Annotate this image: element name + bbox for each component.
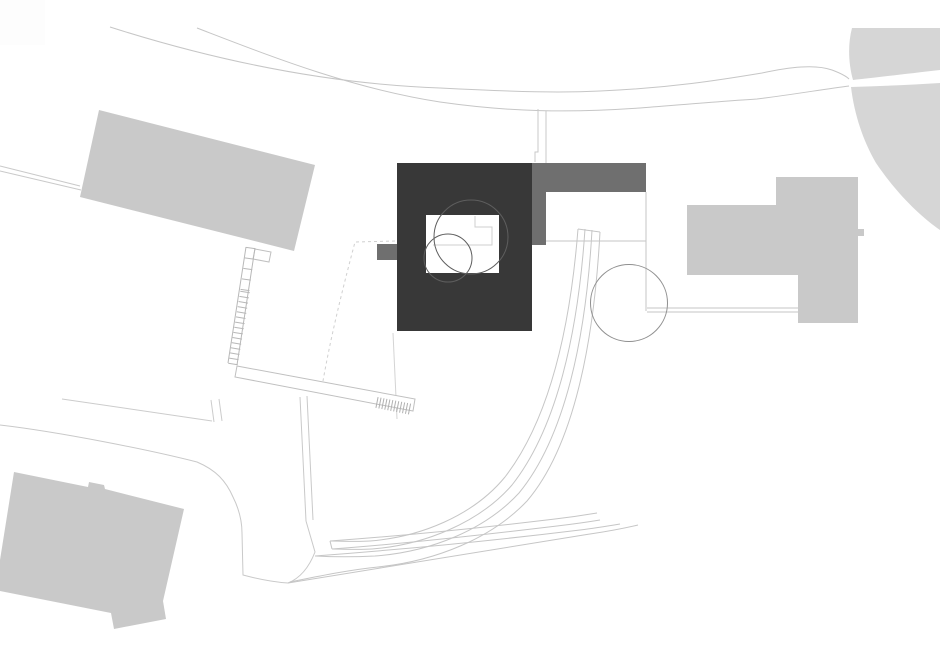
main-house-wing-leg xyxy=(532,192,546,245)
building-east xyxy=(687,177,858,323)
tree-circle-east xyxy=(591,265,668,342)
left-boundary-path xyxy=(0,166,81,190)
main-house-wing xyxy=(532,163,646,192)
stair-treads-lower-tick xyxy=(231,348,240,350)
ramp-cap xyxy=(578,229,600,232)
corner-patch xyxy=(0,0,45,45)
site-plan-canvas xyxy=(0,0,940,646)
building-northwest xyxy=(80,110,315,251)
road-bulge-outline xyxy=(288,521,315,583)
stair-rails xyxy=(228,247,255,365)
wall-band-cap xyxy=(330,541,332,549)
main-house-west-stub xyxy=(377,244,397,260)
wall-band-lower xyxy=(332,520,600,549)
terrain-lower-right xyxy=(851,83,940,230)
stair-treads-lower-tick xyxy=(232,343,241,345)
stair-treads-lower-tick xyxy=(233,338,242,340)
path-to-east-building xyxy=(647,308,798,312)
stair-treads-upper-tick xyxy=(243,268,252,269)
stair-treads-lower-tick xyxy=(230,353,239,355)
mid-footpath-lines xyxy=(300,396,313,521)
lower-side-path xyxy=(62,399,222,422)
stair-treads-upper-tick xyxy=(245,258,254,259)
site-plan-page xyxy=(0,0,940,646)
entry-walk-lines xyxy=(535,109,546,163)
stair-treads-lower-tick xyxy=(229,358,238,360)
terrain-upper-right xyxy=(849,28,940,80)
parcel-dashed-line xyxy=(323,241,395,381)
building-southwest xyxy=(0,472,184,629)
road-lower-edge xyxy=(197,28,849,111)
stair-landing xyxy=(253,249,271,262)
stair-treads-lower-tick xyxy=(228,363,237,365)
building-east-stub xyxy=(858,229,864,236)
stair-treads-upper-tick xyxy=(246,247,255,248)
stair-treads-upper-tick xyxy=(242,279,251,280)
